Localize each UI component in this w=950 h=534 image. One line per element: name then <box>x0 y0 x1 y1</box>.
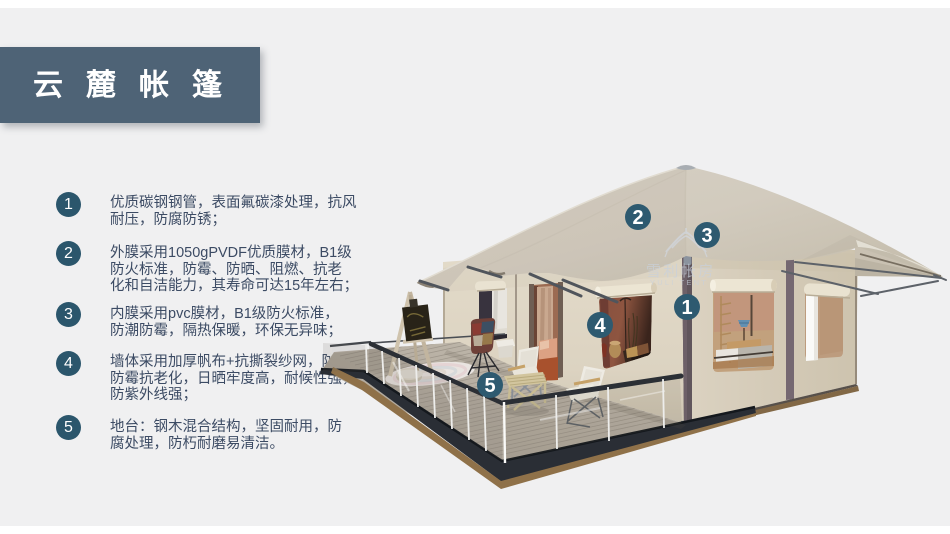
svg-text:2: 2 <box>632 207 643 229</box>
svg-text:5: 5 <box>484 375 495 397</box>
svg-text:YULI TENT: YULI TENT <box>650 278 708 287</box>
svg-text:1: 1 <box>681 297 692 319</box>
svg-text:3: 3 <box>701 225 712 247</box>
svg-text:4: 4 <box>594 315 606 337</box>
